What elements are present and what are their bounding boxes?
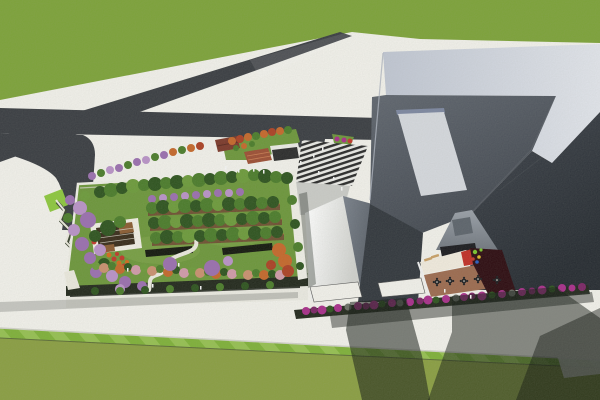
aerial-render-svg bbox=[0, 0, 600, 400]
render-grain-overlay bbox=[0, 0, 600, 400]
render-canvas bbox=[0, 0, 600, 400]
